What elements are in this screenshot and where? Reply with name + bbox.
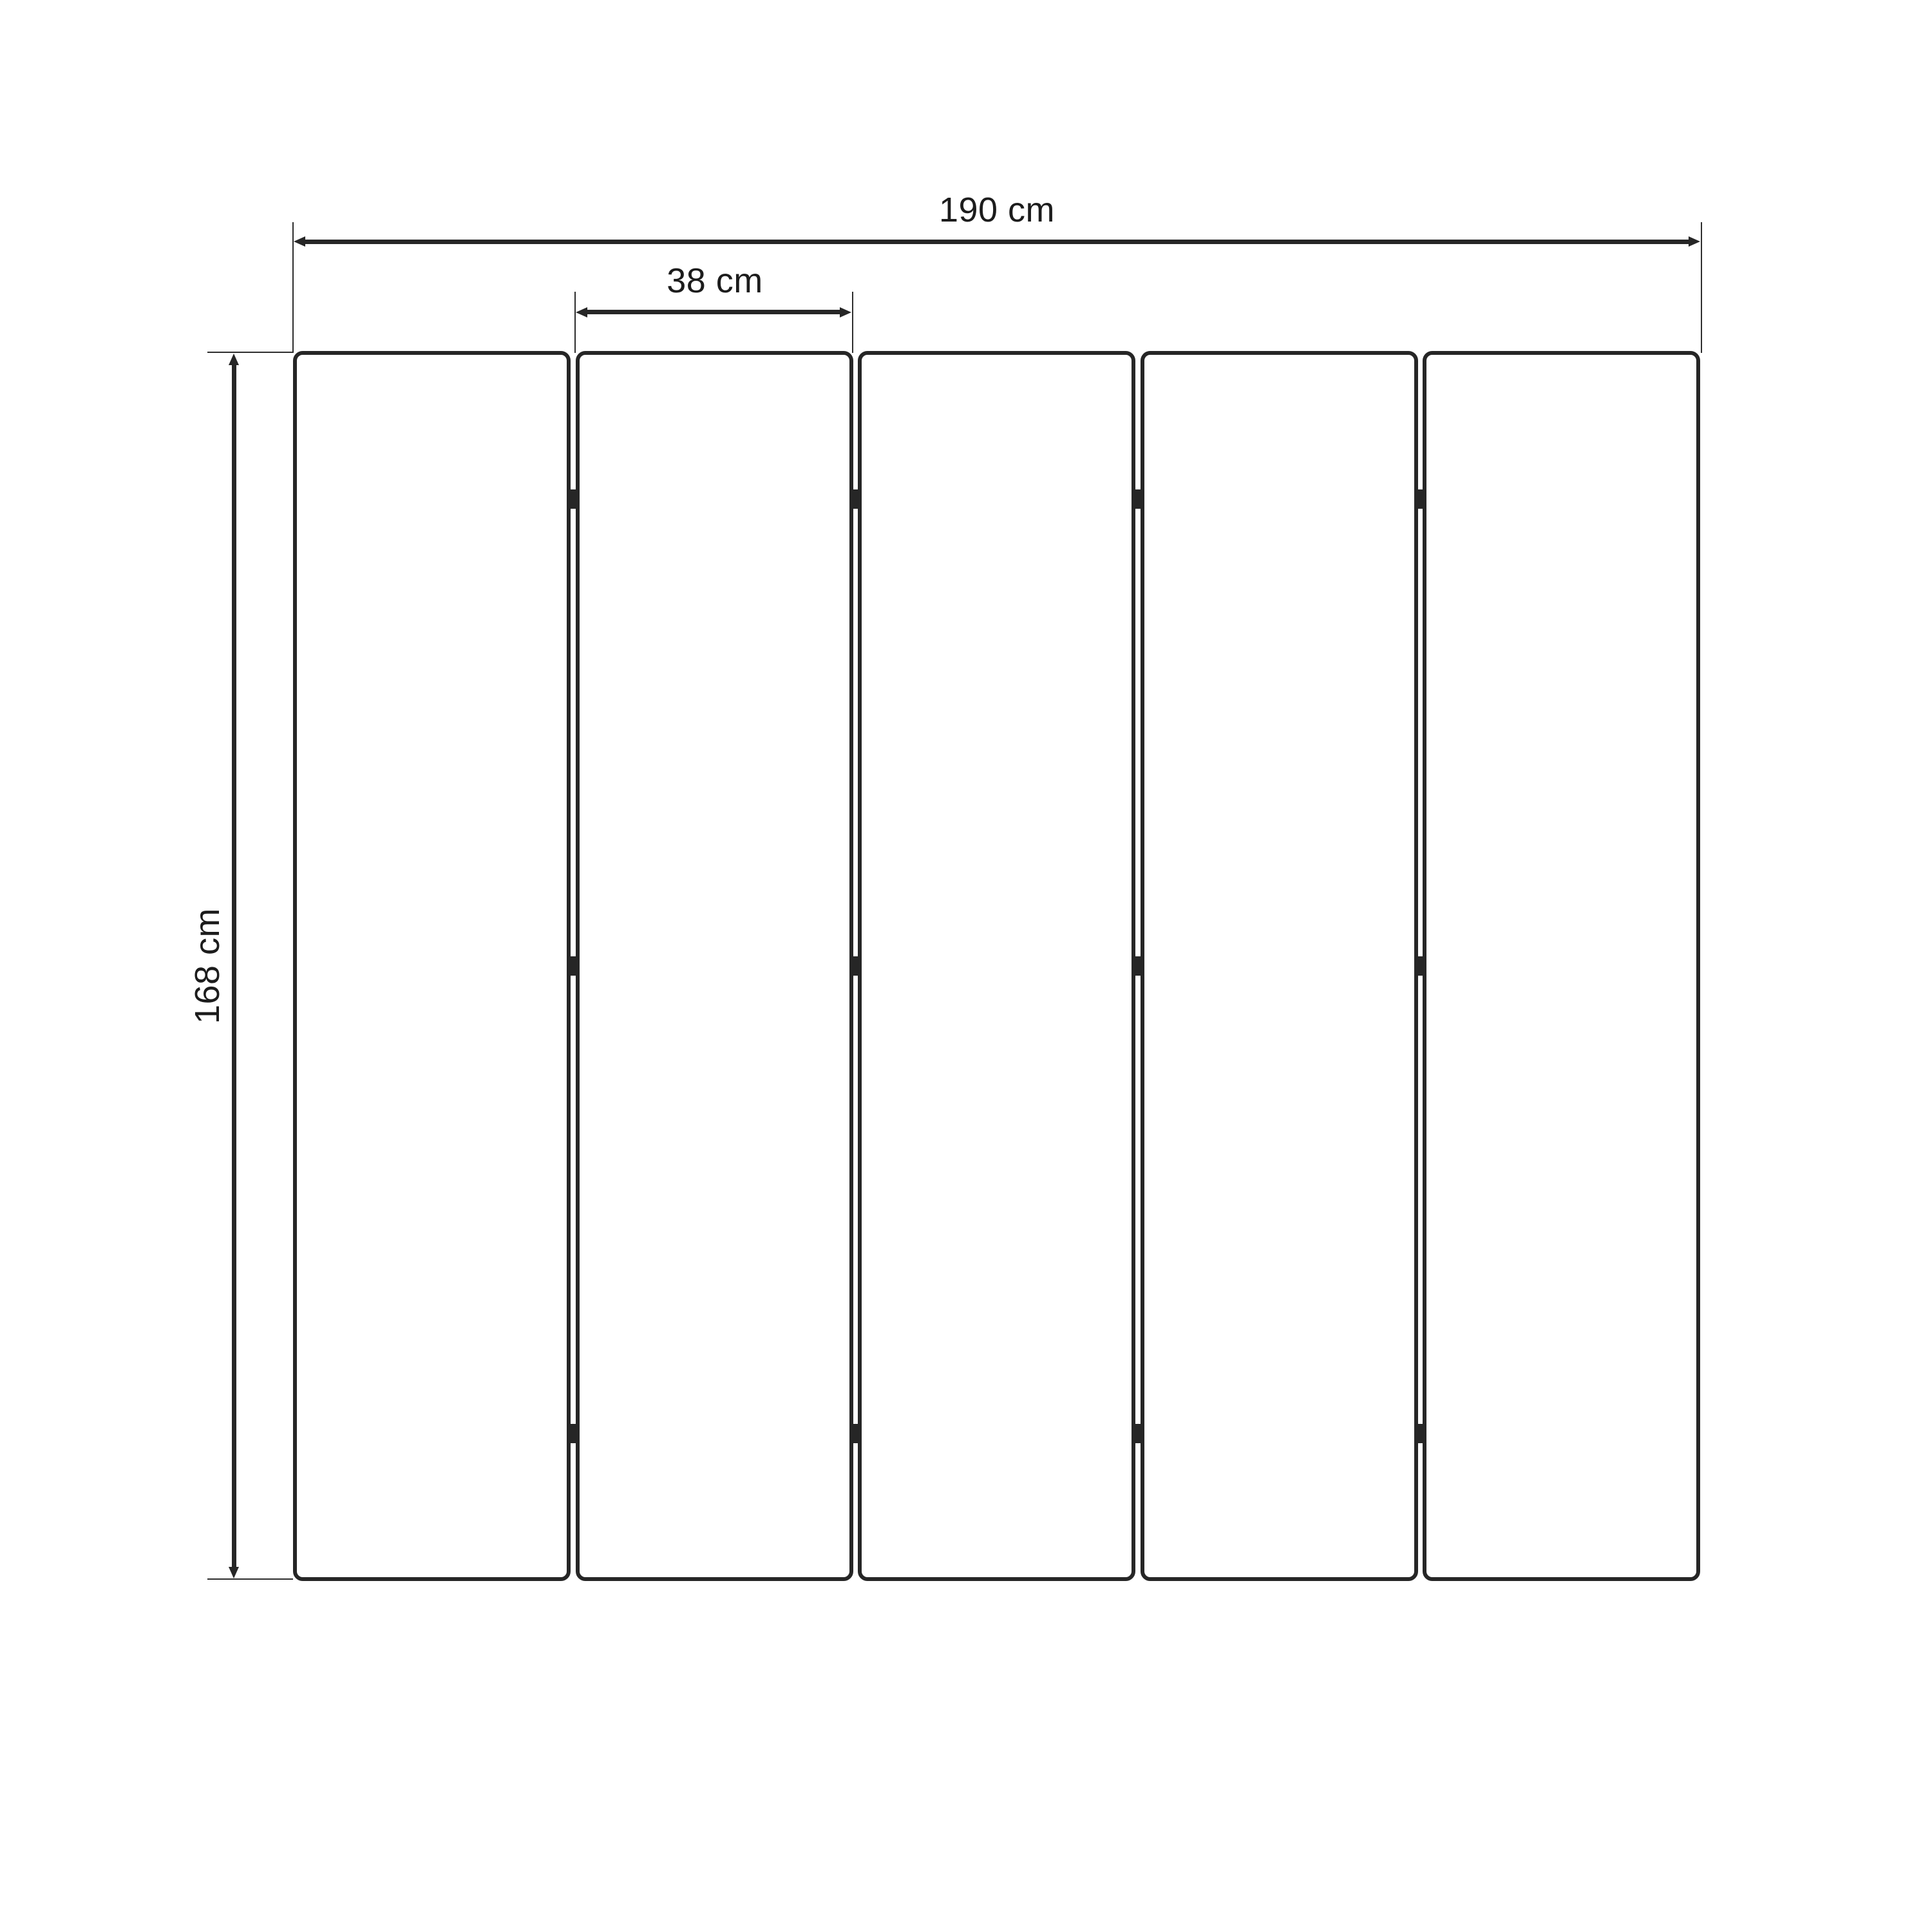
- total-width-arrow-left-icon: [294, 236, 305, 247]
- hinge-connector: [1416, 1424, 1425, 1443]
- panel-width-extension-line-left: [574, 292, 576, 353]
- hinge-connector: [1416, 956, 1425, 976]
- height-arrow-up-icon: [229, 354, 239, 365]
- panel-width-arrow-right-icon: [840, 307, 851, 317]
- panel-width-extension-line-right: [852, 292, 853, 353]
- height-dimension-line: [232, 365, 236, 1567]
- hinge-connector: [851, 489, 860, 509]
- hinge-connector: [569, 1424, 577, 1443]
- hinge-connector: [1133, 489, 1142, 509]
- screen-panel: [576, 351, 853, 1581]
- height-extension-line-bottom: [207, 1578, 293, 1580]
- total-width-label: 190 cm: [939, 193, 1055, 227]
- hinge-connector: [1133, 1424, 1142, 1443]
- screen-panel: [1423, 351, 1700, 1581]
- dimension-diagram: 190 cm 38 cm 168 cm: [0, 0, 1932, 1932]
- total-width-dimension-line: [305, 240, 1689, 244]
- screen-panel: [1141, 351, 1418, 1581]
- panel-width-dimension-line: [587, 310, 840, 314]
- height-arrow-down-icon: [229, 1567, 239, 1578]
- hinge-connector: [569, 489, 577, 509]
- height-label: 168 cm: [190, 908, 225, 1024]
- total-width-extension-line-right: [1701, 222, 1702, 353]
- panel-width-arrow-left-icon: [576, 307, 587, 317]
- screen-panel: [858, 351, 1135, 1581]
- screen-panel: [293, 351, 571, 1581]
- hinge-connector: [1416, 489, 1425, 509]
- hinge-connector: [851, 1424, 860, 1443]
- hinge-connector: [851, 956, 860, 976]
- height-extension-line-top: [207, 352, 293, 353]
- panel-width-label: 38 cm: [667, 263, 763, 298]
- hinge-connector: [569, 956, 577, 976]
- hinge-connector: [1133, 956, 1142, 976]
- total-width-arrow-right-icon: [1689, 236, 1700, 247]
